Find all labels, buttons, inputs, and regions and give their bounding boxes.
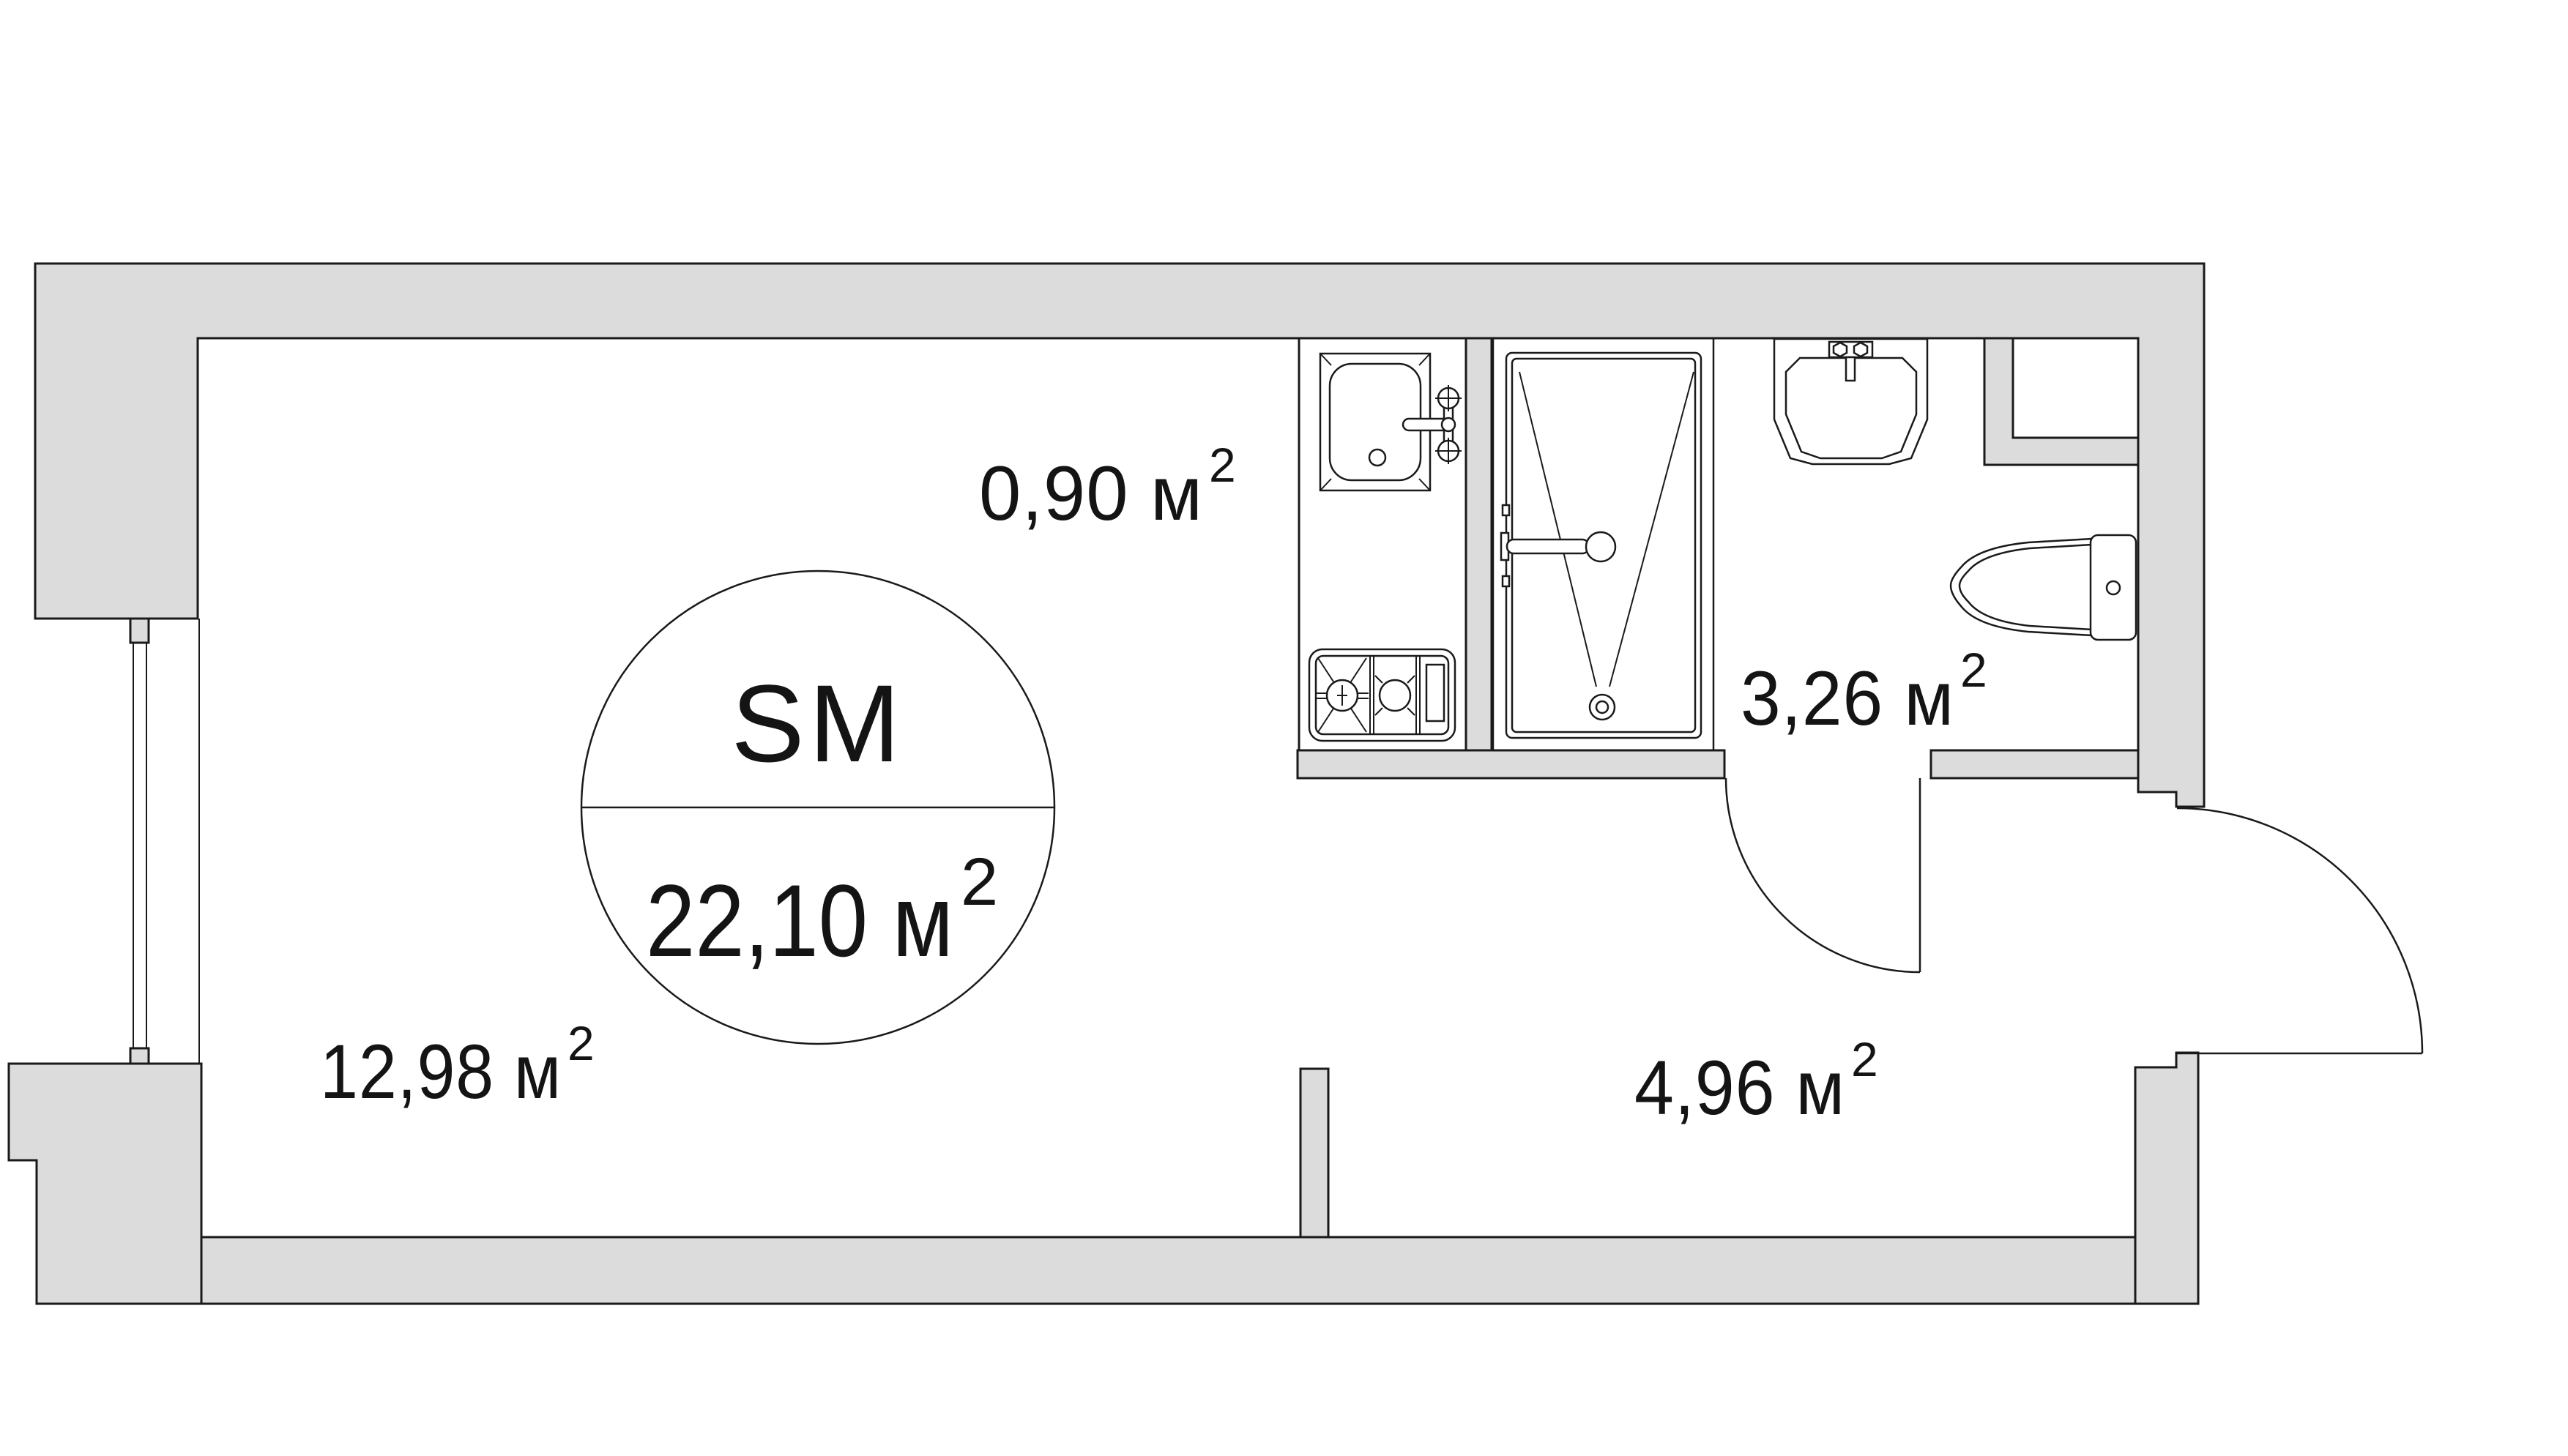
stamp-area-value: 22,10 м xyxy=(646,863,953,978)
room-label-kitchen: 0,90 м 2 xyxy=(979,438,1236,537)
kitchen-sink-icon xyxy=(1320,354,1462,490)
kitchen-area-value: 0,90 м xyxy=(979,451,1203,537)
living-area-value: 12,98 м xyxy=(320,1029,562,1115)
window-jamb-top xyxy=(130,619,149,643)
kitchen-area-sup: 2 xyxy=(1209,438,1236,492)
room-label-hallway: 4,96 м 2 xyxy=(1634,1032,1878,1131)
bath-front-wall-left xyxy=(1298,750,1724,778)
room-label-bathroom: 3,26 м 2 xyxy=(1741,643,1987,742)
bathroom-area-value: 3,26 м xyxy=(1741,656,1954,742)
stamp-title: SM xyxy=(732,662,905,785)
entrance-door xyxy=(2177,808,2422,1053)
area-stamp: SM 22,10 м 2 xyxy=(581,571,1054,1044)
stamp-area-sup: 2 xyxy=(961,845,998,919)
bottom-wall xyxy=(201,1237,2198,1304)
hallway-stub-wall xyxy=(1300,1069,1328,1237)
bathroom-area-sup: 2 xyxy=(1960,643,1987,697)
shaft-wall xyxy=(1984,338,2138,465)
bottom-right-wall xyxy=(2135,1053,2198,1304)
window xyxy=(130,619,199,1064)
bathroom-door-swing-arc xyxy=(1726,778,1920,972)
bathroom-sink-icon xyxy=(1774,339,1927,464)
window-jamb-bottom xyxy=(130,1048,149,1064)
toilet-icon xyxy=(1951,535,2136,640)
stove-icon xyxy=(1309,649,1455,741)
hallway-area-value: 4,96 м xyxy=(1634,1045,1845,1131)
bottom-left-wall xyxy=(9,1064,201,1304)
living-area-sup: 2 xyxy=(567,1016,595,1070)
room-label-living: 12,98 м 2 xyxy=(320,1016,595,1115)
hallway-area-sup: 2 xyxy=(1851,1032,1878,1086)
bathtub-icon xyxy=(1493,338,1713,750)
bathroom-door xyxy=(1726,778,1920,972)
bath-front-wall-right xyxy=(1931,750,2138,778)
entrance-door-swing-arc xyxy=(2177,808,2422,1053)
floor-plan: SM 22,10 м 2 0,90 м 2 12,98 м 2 3,26 м 2… xyxy=(0,0,2568,1456)
kitchen-bath-divider-wall xyxy=(1466,338,1492,750)
